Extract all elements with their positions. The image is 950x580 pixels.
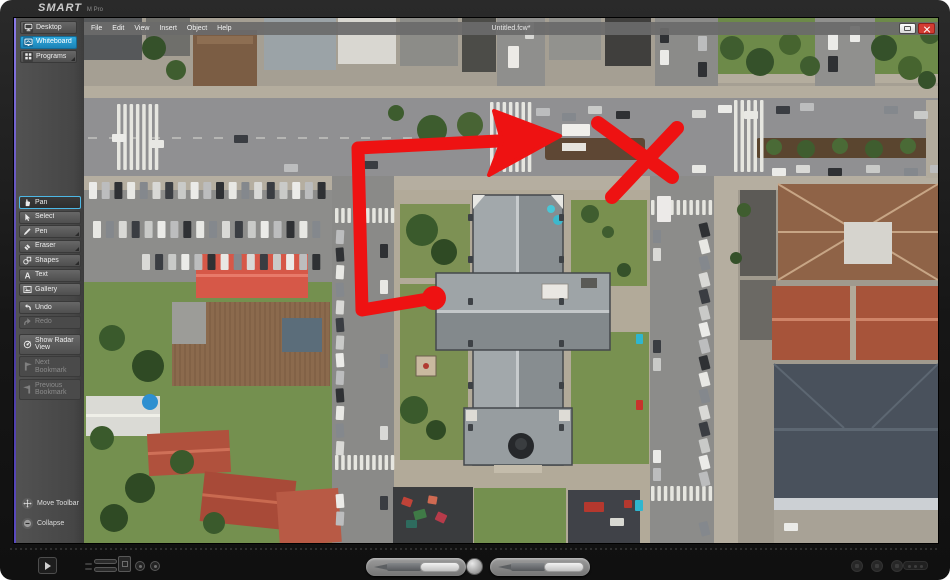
restore-icon [904, 26, 911, 31]
bezel-indicator [903, 561, 928, 570]
tool-label: Undo [35, 304, 52, 311]
tool-button-previous-bookmark[interactable]: Previous Bookmark [19, 379, 81, 400]
mode-buttons: Desktop Whiteboard Programs [20, 21, 77, 65]
tool-button-gallery[interactable]: Gallery [19, 283, 81, 296]
pen-tray-center-button[interactable] [466, 558, 483, 575]
svg-text:A: A [24, 271, 30, 280]
redo-icon [22, 317, 32, 327]
menu-edit[interactable]: Edit [107, 22, 129, 35]
menu-insert[interactable]: Insert [154, 22, 182, 35]
pan-icon [22, 198, 32, 208]
tool-buttons: Pan Select Pen [19, 196, 81, 401]
gallery-icon [22, 285, 32, 295]
tool-button-pen[interactable]: Pen [19, 225, 81, 238]
ink-layer [84, 18, 938, 543]
eraser-icon [22, 241, 32, 251]
bezel-control-button[interactable] [851, 560, 863, 572]
pen-tray-right [490, 558, 590, 576]
menu-file[interactable]: File [86, 22, 107, 35]
tool-button-undo[interactable]: Undo [19, 301, 81, 314]
tool-label: Next Bookmark [35, 359, 79, 374]
previous-bookmark-icon [22, 384, 32, 394]
mode-label: Programs [36, 53, 66, 60]
screen: Desktop Whiteboard Programs [14, 18, 938, 543]
tool-button-eraser[interactable]: Eraser [19, 240, 81, 253]
menu-help[interactable]: Help [212, 22, 236, 35]
move-toolbar-icon [22, 498, 33, 509]
mode-button-programs[interactable]: Programs [20, 50, 77, 63]
hdmi-port [118, 556, 131, 572]
menu-bar: File Edit View Insert Object Help Untitl… [84, 22, 938, 35]
stylus-left [374, 562, 460, 572]
ink-route-arrow[interactable] [358, 111, 560, 310]
mode-label: Desktop [36, 24, 62, 31]
submenu-indicator [75, 247, 79, 251]
bezel-control-button[interactable] [891, 560, 903, 572]
port-pin [85, 568, 92, 570]
submenu-indicator [71, 57, 75, 61]
tool-label: Eraser [35, 242, 56, 249]
tool-label: Redo [35, 318, 52, 325]
mode-button-desktop[interactable]: Desktop [20, 21, 77, 34]
bezel-control-button[interactable] [871, 560, 883, 572]
menu-view[interactable]: View [129, 22, 154, 35]
shapes-icon [22, 256, 32, 266]
restore-window-button[interactable] [899, 23, 916, 34]
desktop-icon [23, 23, 33, 33]
next-bookmark-icon [22, 362, 32, 372]
usb-port [94, 559, 117, 564]
pen-tray-left [366, 558, 466, 576]
bezel-round-button[interactable] [135, 561, 145, 571]
whiteboard-canvas[interactable]: File Edit View Insert Object Help Untitl… [84, 18, 938, 543]
tool-button-pan[interactable]: Pan [19, 196, 81, 209]
tool-button-select[interactable]: Select [19, 211, 81, 224]
radar-icon [22, 339, 32, 349]
window-controls [899, 23, 935, 34]
stylus-right [498, 562, 584, 572]
whiteboard-icon [23, 37, 33, 47]
tool-label: Shapes [35, 257, 59, 264]
port-pin [85, 563, 92, 565]
tool-label: Select [35, 213, 54, 220]
tool-label: Pan [35, 199, 47, 206]
smart-logo: SMART M Pro [38, 2, 103, 16]
tool-label: Text [35, 271, 48, 278]
usb-port [94, 567, 117, 572]
tool-label: Show Radar View [35, 337, 79, 352]
mode-label: Whiteboard [36, 38, 72, 45]
bezel-input-button[interactable] [38, 557, 57, 574]
tool-button-show-radar-view[interactable]: Show Radar View [19, 334, 81, 355]
play-icon [45, 562, 51, 570]
smart-board-device: SMART M Pro Desktop Whiteboard [0, 0, 950, 580]
tool-label: Gallery [35, 286, 57, 293]
bezel-ports [85, 555, 165, 577]
tool-label: Previous Bookmark [35, 382, 79, 397]
footer-label: Collapse [37, 520, 64, 527]
text-icon: A [22, 270, 32, 280]
bezel-vent-line [10, 548, 940, 550]
tool-button-text[interactable]: A Text [19, 269, 81, 282]
submenu-indicator [75, 261, 79, 265]
model-label: M Pro [87, 7, 103, 13]
select-icon [22, 212, 32, 222]
undo-icon [22, 303, 32, 313]
tool-button-shapes[interactable]: Shapes [19, 254, 81, 267]
tool-button-next-bookmark[interactable]: Next Bookmark [19, 356, 81, 377]
submenu-indicator [75, 232, 79, 236]
tool-label: Pen [35, 228, 47, 235]
mode-button-whiteboard[interactable]: Whiteboard [20, 36, 77, 49]
menu-items: File Edit View Insert Object Help [84, 22, 237, 35]
bezel-round-button[interactable] [150, 561, 160, 571]
brand-wordmark: SMART [38, 2, 82, 14]
move-toolbar-button[interactable]: Move Toolbar [22, 498, 79, 509]
menu-object[interactable]: Object [182, 22, 212, 35]
collapse-icon [22, 518, 33, 529]
tool-button-redo[interactable]: Redo [19, 316, 81, 329]
smart-toolbar: Desktop Whiteboard Programs [16, 18, 84, 543]
ink-x-mark[interactable] [598, 123, 677, 197]
close-window-button[interactable] [918, 23, 935, 34]
programs-icon [23, 52, 33, 62]
footer-label: Move Toolbar [37, 500, 79, 507]
collapse-toolbar-button[interactable]: Collapse [22, 518, 64, 529]
pen-icon [22, 227, 32, 237]
